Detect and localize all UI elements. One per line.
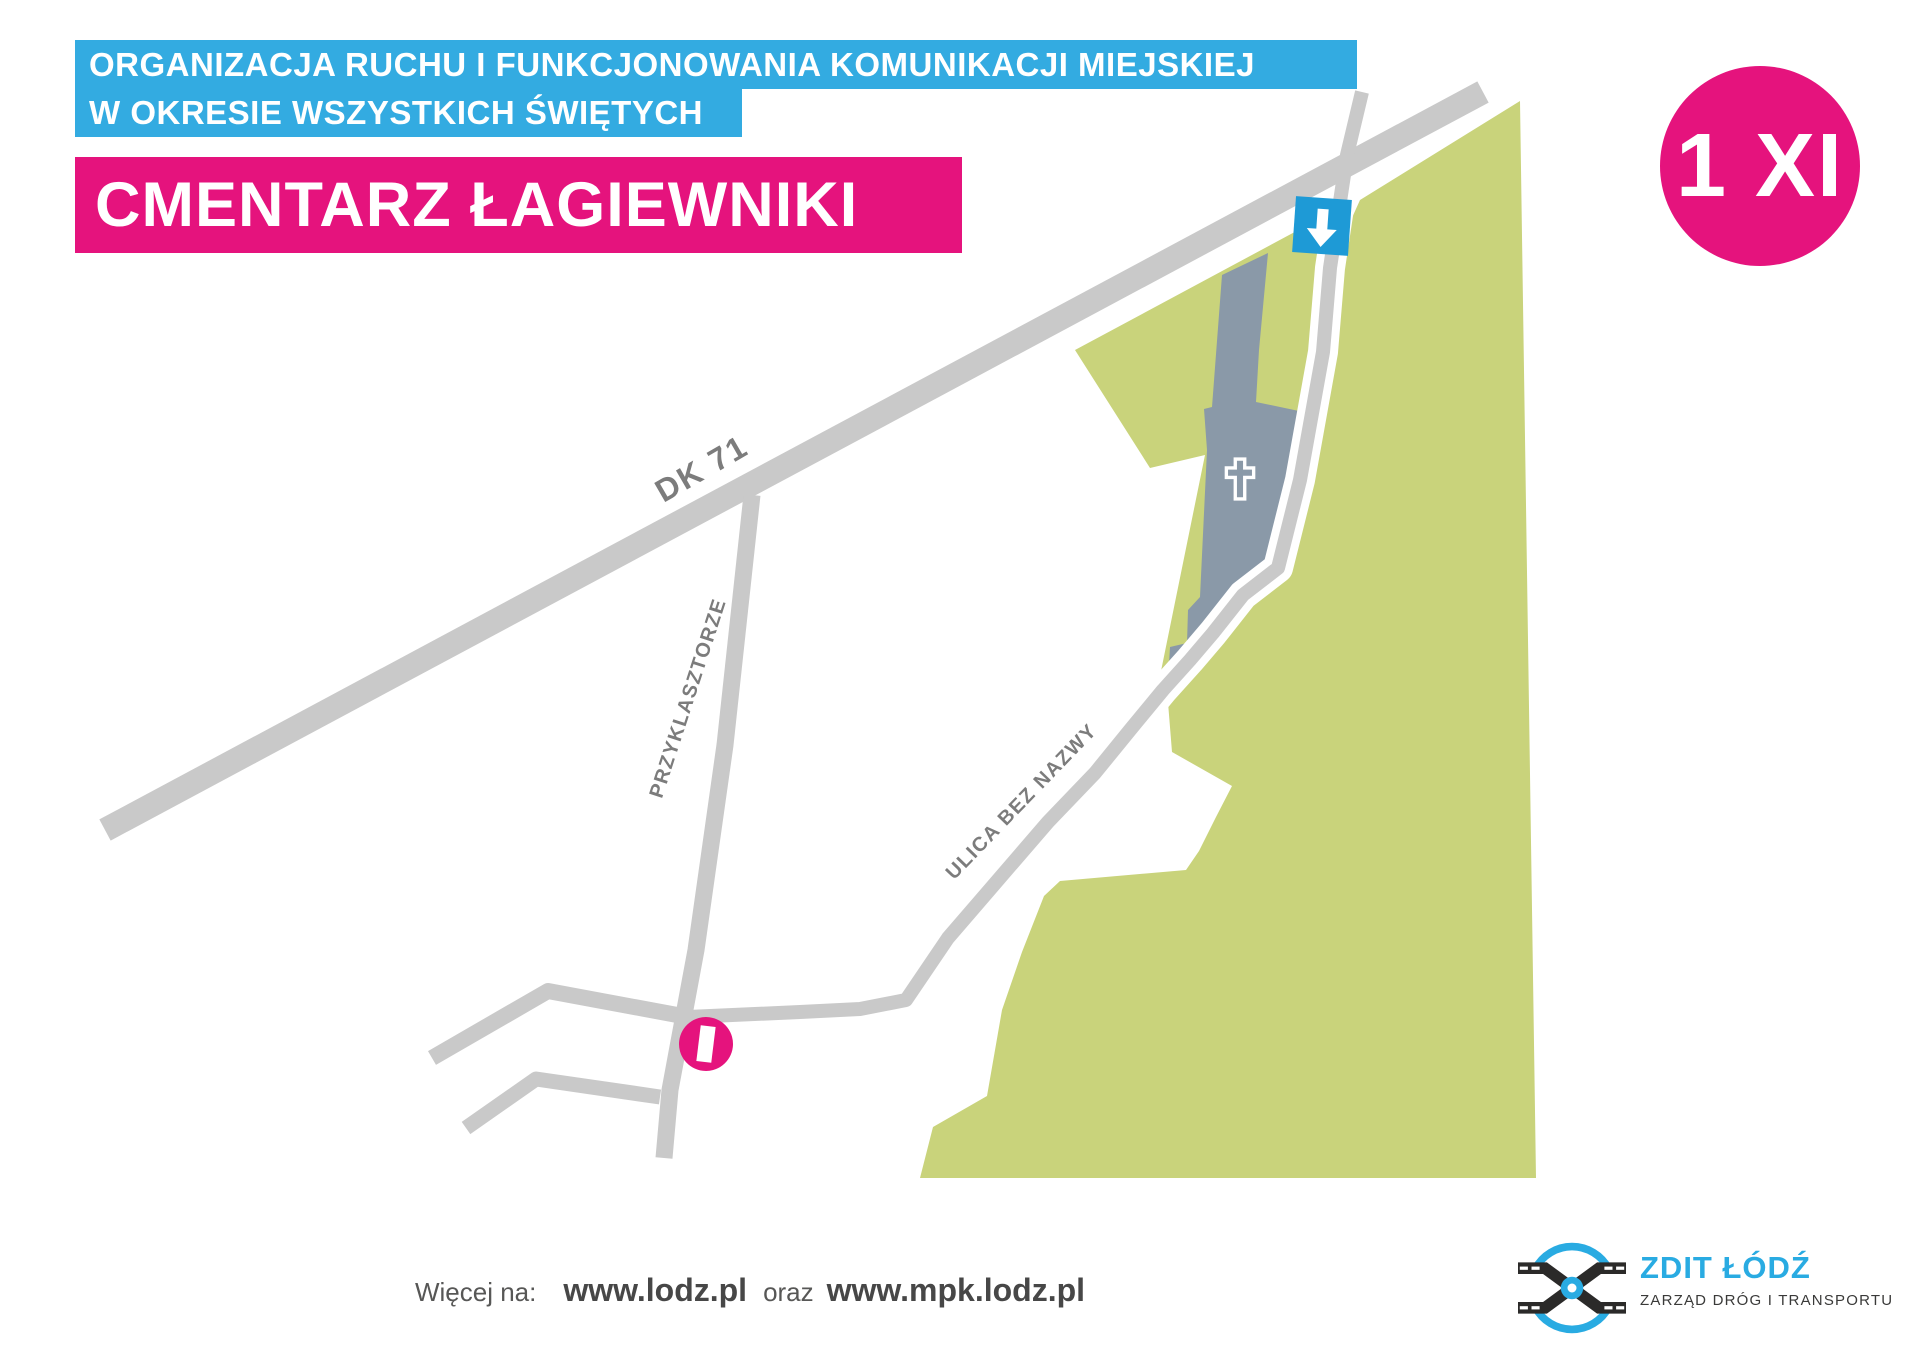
footer: Więcej na: www.lodz.pl oraz www.mpk.lodz… [0, 1272, 1500, 1309]
footer-more-label: Więcej na: [415, 1277, 536, 1308]
footer-link-mpk[interactable]: www.mpk.lodz.pl [827, 1272, 1085, 1309]
zdit-logo-icon [1518, 1234, 1626, 1342]
footer-link-lodz[interactable]: www.lodz.pl [563, 1272, 747, 1309]
zdit-logo-text: ZDIT ŁÓDŹ ZARZĄD DRÓG I TRANSPORTU [1640, 1234, 1893, 1309]
poster: DK 71 PRZYKLASZTORZE ULICA BEZ NAZWY ORG… [0, 0, 1920, 1365]
entrance-down-arrow-icon [1292, 196, 1352, 256]
zdit-logo-subtitle: ZARZĄD DRÓG I TRANSPORTU [1640, 1292, 1893, 1309]
header-line-2: W OKRESIE WSZYSTKICH ŚWIĘTYCH [75, 89, 742, 137]
green-area-main [920, 101, 1536, 1178]
page-title: CMENTARZ ŁAGIEWNIKI [75, 157, 962, 253]
date-badge: 1 XI [1660, 66, 1860, 266]
road-side-branch-upper [432, 991, 688, 1058]
header-line-1-text: ORGANIZACJA RUCHU I FUNKCJONOWANIA KOMUN… [89, 46, 1255, 84]
header-line-2-text: W OKRESIE WSZYSTKICH ŚWIĘTYCH [89, 94, 703, 132]
road-side-branch-lower [466, 1079, 660, 1128]
page-title-text: CMENTARZ ŁAGIEWNIKI [95, 169, 858, 241]
zdit-logo-name: ZDIT ŁÓDŹ [1640, 1250, 1893, 1286]
date-badge-text: 1 XI [1676, 115, 1844, 218]
header-line-1: ORGANIZACJA RUCHU I FUNKCJONOWANIA KOMUN… [75, 40, 1357, 89]
zdit-logo: ZDIT ŁÓDŹ ZARZĄD DRÓG I TRANSPORTU [1518, 1234, 1893, 1342]
footer-conjunction: oraz [763, 1277, 814, 1308]
